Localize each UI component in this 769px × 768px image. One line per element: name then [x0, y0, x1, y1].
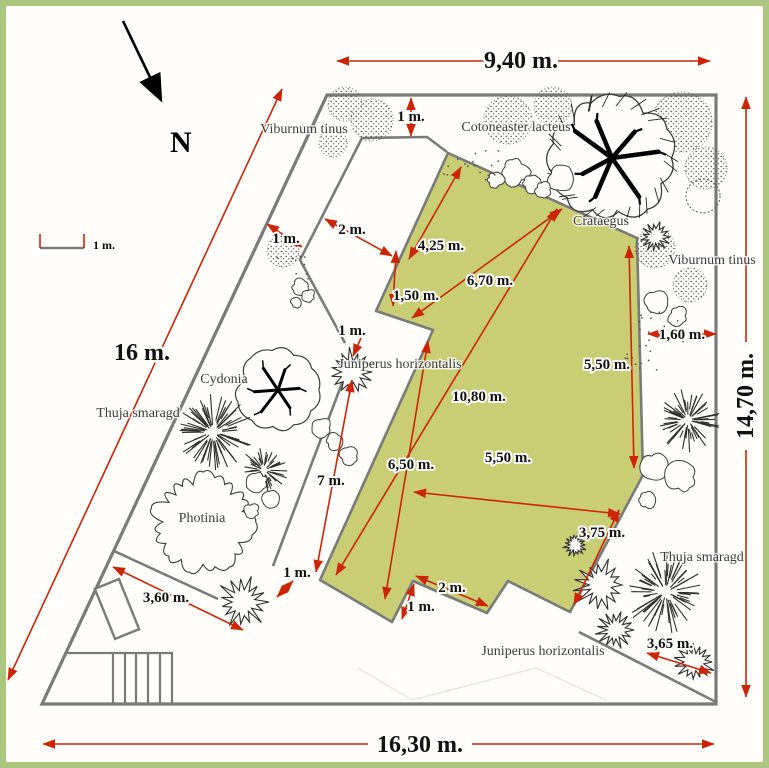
scale-label: 1 m.: [93, 238, 115, 252]
dim-top: 9,40 m.: [484, 48, 558, 74]
measure-lawn-top-edge: 4,25 m.: [418, 238, 464, 254]
measure-side-path: 7 m.: [317, 473, 345, 489]
measure-lawn-diag-upper: 6,70 m.: [467, 273, 513, 289]
label-cydonia: Cydonia: [200, 372, 248, 387]
measure-lawn-lower-right: 3,75 m.: [579, 525, 625, 541]
measure-lawn-diag-lower: 5,50 m.: [485, 450, 531, 466]
label-juniperus-mid: Juniperus horizontalis: [338, 357, 461, 372]
label-photinia: Photinia: [179, 511, 226, 526]
measure-lawn-length: 10,80 m.: [452, 389, 506, 405]
faint-ground-marks: [358, 668, 606, 700]
label-thuja-right: Thuja smaragd: [660, 550, 744, 565]
measure-top-border-offset: 1 m.: [397, 109, 425, 125]
measure-notch-width: 2 m.: [438, 580, 466, 596]
garden-plan-drawing: N 1 m.: [0, 0, 769, 768]
measure-left-corridor: 1 m.: [272, 231, 300, 247]
label-viburnum-right: Viburnum tinus: [668, 253, 755, 268]
measure-right-strip: 1,60 m.: [659, 327, 705, 343]
measure-bottom-path: 3,60 m.: [143, 590, 189, 606]
measure-lawn-step: 1,50 m.: [393, 288, 439, 304]
label-juniperus-bottom: Juniperus horizontalis: [481, 644, 604, 659]
garden-plan: N 1 m.: [0, 0, 769, 768]
label-thuja-left: Thuja smaragd: [96, 406, 180, 421]
planter: [95, 579, 139, 639]
measure-corner-hedge: 3,65 m.: [647, 636, 693, 652]
label-viburnum-top: Viburnum tinus: [260, 122, 347, 137]
stairs: [66, 653, 173, 703]
measure-path-narrow: 1 m.: [338, 323, 366, 339]
measure-lawn-right-edge: 5,50 m.: [584, 357, 630, 373]
measure-lawn-left-edge: 6,50 m.: [388, 457, 434, 473]
scale-bar: 1 m.: [40, 234, 115, 252]
dim-left: 16 m.: [114, 340, 170, 366]
measure-bed-gap: 1 m.: [283, 565, 311, 581]
north-label: N: [170, 126, 192, 159]
measure-notch-depth: 1 m.: [407, 599, 435, 615]
label-cotoneaster: Cotoneaster lacteus: [461, 120, 570, 135]
dim-right: 14,70 m.: [733, 353, 759, 439]
dim-bottom: 16,30 m.: [377, 732, 463, 758]
label-crataegus: Crataegus: [573, 214, 629, 229]
north-arrow: N: [123, 21, 192, 159]
measure-upper-path: 2 m.: [338, 222, 366, 238]
